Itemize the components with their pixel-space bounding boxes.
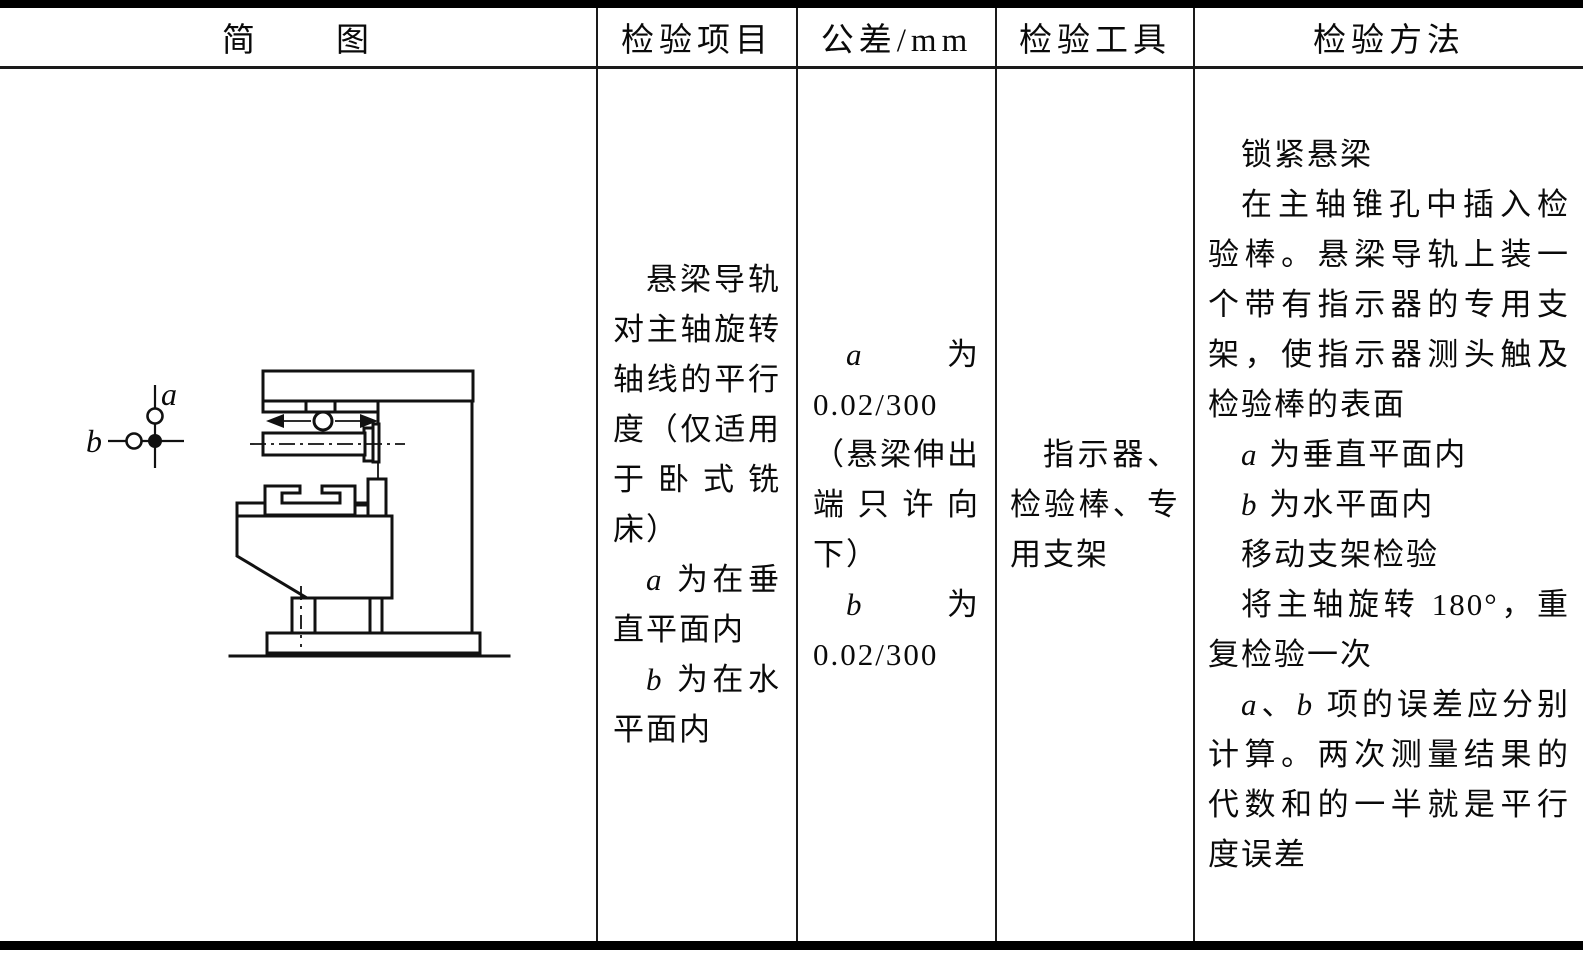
direction-label-b: b: [86, 423, 102, 459]
paragraph: 将主轴旋转 180°，重复检验一次: [1208, 580, 1570, 680]
arrow-left-icon: [266, 414, 284, 428]
header-cell-tools: 检验工具: [995, 8, 1193, 66]
item-cell: 悬梁导轨对主轴旋转轴线的平行度（仅适用于卧式铣床）a 为在垂直平面内b 为在水平…: [596, 69, 796, 941]
direction-symbol-icon: a b: [86, 376, 184, 468]
paragraph: 悬梁导轨对主轴旋转轴线的平行度（仅适用于卧式铣床）: [613, 255, 781, 555]
header-cell-diagram: 简 图: [0, 8, 596, 66]
milling-machine-drawing: [230, 371, 509, 656]
method-cell: 锁紧悬梁在主轴锥孔中插入检验棒。悬梁导轨上装一个带有指示器的专用支架，使指示器测…: [1193, 69, 1583, 941]
inspection-table: 简 图 检验项目 公差/mm 检验工具 检验方法 a b: [0, 0, 1583, 950]
tools-cell: 指示器、检验棒、专用支架: [995, 69, 1193, 941]
paragraph: a 为 0.02/300（悬梁伸出端只许向下）: [813, 330, 980, 580]
paragraph: b 为在水平面内: [613, 655, 781, 755]
diagram-cell: a b: [0, 69, 596, 941]
header-cell-tolerance: 公差/mm: [796, 8, 995, 66]
knee: [237, 516, 392, 598]
machine-base: [267, 633, 480, 653]
paragraph: b 为 0.02/300: [813, 580, 980, 680]
paragraph: b 为水平面内: [1208, 480, 1570, 530]
worktable: [265, 486, 355, 515]
paragraph: 锁紧悬梁: [1208, 130, 1570, 180]
paragraph: a 为垂直平面内: [1208, 430, 1570, 480]
table-header-row: 简 图 检验项目 公差/mm 检验工具 检验方法: [0, 8, 1583, 69]
paragraph: 在主轴锥孔中插入检验棒。悬梁导轨上装一个带有指示器的专用支架，使指示器测头触及检…: [1208, 180, 1570, 430]
indicator-mount: [368, 479, 386, 516]
paragraph: a、b 项的误差应分别计算。两次测量结果的代数和的一半就是平行度误差: [1208, 680, 1570, 880]
paragraph: 移动支架检验: [1208, 530, 1570, 580]
direction-label-a: a: [161, 376, 177, 412]
machine-diagram: a b: [0, 69, 596, 941]
paragraph: 指示器、检验棒、专用支架: [1010, 430, 1180, 580]
header-cell-method: 检验方法: [1193, 8, 1583, 66]
overarm: [263, 371, 473, 401]
tolerance-cell: a 为 0.02/300（悬梁伸出端只许向下）b 为 0.02/300: [796, 69, 995, 941]
header-cell-item: 检验项目: [596, 8, 796, 66]
paragraph: a 为在垂直平面内: [613, 555, 781, 655]
table-body-row: a b: [0, 69, 1583, 941]
indicator: [314, 412, 332, 430]
